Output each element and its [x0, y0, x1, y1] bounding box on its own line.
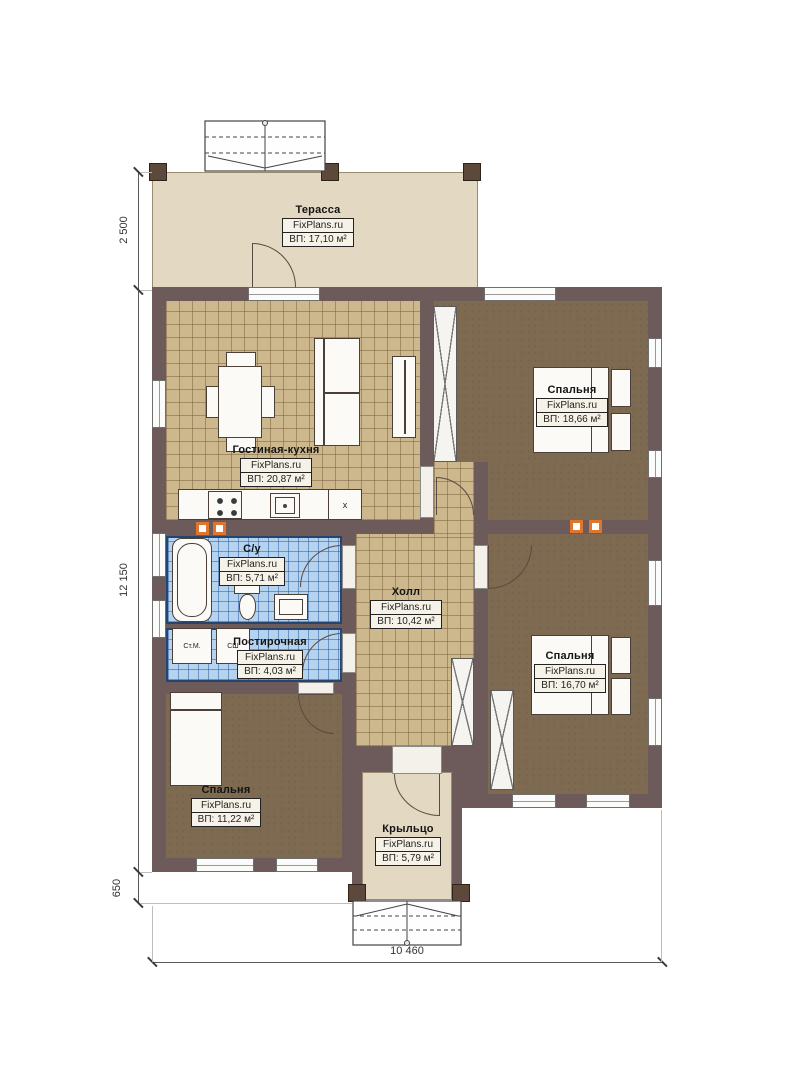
dim-house-depth: 12 150 — [118, 550, 130, 610]
window-bedroom-right-bottom-2 — [586, 794, 630, 808]
window-bathroom-left — [152, 533, 166, 577]
label-bedroom-right: Спальня FixPlans.ru ВП: 16,70 м² — [522, 650, 618, 693]
room-area: ВП: 5,79 м² — [376, 852, 440, 865]
stove — [208, 491, 242, 519]
bathroom-sink — [274, 594, 308, 620]
extension-line — [141, 872, 152, 873]
room-info-box: FixPlans.ru ВП: 10,42 м² — [370, 600, 441, 629]
room-area: ВП: 5,71 м² — [220, 572, 284, 585]
room-name: Холл — [392, 586, 420, 598]
room-info-box: FixPlans.ru ВП: 5,79 м² — [375, 837, 441, 866]
label-bathroom: С/у FixPlans.ru ВП: 5,71 м² — [204, 543, 300, 586]
room-area: ВП: 16,70 м² — [535, 679, 604, 692]
room-name: С/у — [243, 543, 261, 555]
dim-house-width: 10 460 — [357, 945, 457, 957]
brand-watermark: FixPlans.ru — [283, 219, 352, 233]
vent-shaft-3 — [570, 520, 583, 533]
washing-machine: Ст.М. — [172, 628, 212, 664]
room-name: Крыльцо — [382, 823, 433, 835]
washing-machine-label: Ст.М. — [183, 643, 200, 650]
label-hall: Холл FixPlans.ru ВП: 10,42 м² — [356, 586, 456, 629]
brand-watermark: FixPlans.ru — [192, 799, 261, 813]
window-bedroom-tr-top — [484, 287, 556, 301]
label-bedroom-top-right: Спальня FixPlans.ru ВП: 18,66 м² — [524, 384, 620, 427]
toilet-bowl — [239, 594, 256, 620]
room-area: ВП: 11,22 м² — [192, 813, 261, 826]
floor-plan: x Ст.М. СШ Терасса FixPlans.ru ВП: 17,10… — [0, 0, 792, 1080]
wardrobe-hall — [451, 658, 474, 746]
vent-shaft-4 — [589, 520, 602, 533]
brand-watermark: FixPlans.ru — [535, 665, 604, 679]
fridge: x — [328, 489, 362, 520]
window-laundry-left — [152, 600, 166, 638]
brand-watermark: FixPlans.ru — [537, 399, 606, 413]
extension-line — [141, 172, 152, 173]
extension-line — [141, 290, 152, 291]
label-laundry: Постирочная FixPlans.ru ВП: 4,03 м² — [222, 636, 318, 679]
window-bedroom-bl-1 — [196, 858, 254, 872]
dimension-line-bottom — [152, 962, 662, 963]
dining-chair-top — [226, 352, 256, 367]
extension-line — [141, 903, 352, 904]
doorway-bedroom-bl — [298, 682, 334, 694]
label-terrace: Терасса FixPlans.ru ВП: 17,10 м² — [268, 204, 368, 247]
vent-shaft-1 — [196, 522, 209, 535]
fridge-label: x — [343, 500, 348, 510]
room-info-box: FixPlans.ru ВП: 17,10 м² — [282, 218, 353, 247]
terrace-stairs — [204, 120, 326, 172]
label-bedroom-bottom-left: Спальня FixPlans.ru ВП: 11,22 м² — [178, 784, 274, 827]
doorway-laundry — [342, 633, 356, 673]
room-name: Спальня — [202, 784, 251, 796]
room-info-box: FixPlans.ru ВП: 5,71 м² — [219, 557, 285, 586]
window-bedroom-bl-2 — [276, 858, 318, 872]
dim-terrace-depth: 2 500 — [118, 200, 130, 260]
room-info-box: FixPlans.ru ВП: 16,70 м² — [534, 664, 605, 693]
dimension-line-left — [138, 172, 139, 903]
room-area: ВП: 4,03 м² — [238, 665, 302, 678]
window-living-left — [152, 380, 166, 428]
room-info-box: FixPlans.ru ВП: 4,03 м² — [237, 650, 303, 679]
room-name: Постирочная — [233, 636, 307, 648]
room-name: Гостиная-кухня — [232, 444, 319, 456]
dim-porch-step: 650 — [111, 863, 123, 913]
room-name: Спальня — [546, 650, 595, 662]
brand-watermark: FixPlans.ru — [241, 459, 310, 473]
room-name: Спальня — [548, 384, 597, 396]
wardrobe-bedroom-right — [490, 690, 514, 790]
window-bedroom-right-1 — [648, 560, 662, 606]
bedroom-top-right-floor-lower — [488, 462, 648, 520]
passage-living-corridor — [420, 466, 434, 518]
vent-shaft-2 — [213, 522, 226, 535]
tv-stand — [392, 356, 416, 438]
room-info-box: FixPlans.ru ВП: 11,22 м² — [191, 798, 262, 827]
extension-line — [152, 906, 153, 962]
label-living-kitchen: Гостиная-кухня FixPlans.ru ВП: 20,87 м² — [226, 444, 326, 487]
window-bedroom-right-bottom-1 — [512, 794, 556, 808]
terrace-column-right — [463, 163, 481, 181]
room-area: ВП: 10,42 м² — [371, 615, 440, 628]
doorway-bathroom — [342, 545, 356, 589]
room-area: ВП: 17,10 м² — [283, 233, 352, 246]
extension-line — [661, 810, 662, 962]
doorway-bedroom-right — [474, 545, 488, 589]
brand-watermark: FixPlans.ru — [371, 601, 440, 615]
wardrobe-bedroom-tr — [433, 306, 457, 462]
window-bedroom-tr-right-2 — [648, 450, 662, 478]
label-porch: Крыльцо FixPlans.ru ВП: 5,79 м² — [360, 823, 456, 866]
bed-bottom-left — [170, 692, 222, 786]
room-info-box: FixPlans.ru ВП: 20,87 м² — [240, 458, 311, 487]
brand-watermark: FixPlans.ru — [220, 558, 284, 572]
room-area: ВП: 20,87 м² — [241, 473, 310, 486]
brand-watermark: FixPlans.ru — [238, 651, 302, 665]
porch-stairs — [352, 900, 462, 946]
window-bedroom-right-2 — [648, 698, 662, 746]
brand-watermark: FixPlans.ru — [376, 838, 440, 852]
room-name: Терасса — [295, 204, 340, 216]
room-info-box: FixPlans.ru ВП: 18,66 м² — [536, 398, 607, 427]
living-kitchen-floor — [166, 301, 420, 520]
window-bedroom-tr-right-1 — [648, 338, 662, 368]
kitchen-sink — [270, 493, 300, 518]
dining-chair-right — [260, 386, 275, 418]
terrace-door-unit — [248, 287, 320, 301]
dining-table — [218, 366, 262, 438]
doorway-entrance — [392, 746, 442, 774]
sofa — [314, 338, 360, 446]
room-area: ВП: 18,66 м² — [537, 413, 606, 426]
